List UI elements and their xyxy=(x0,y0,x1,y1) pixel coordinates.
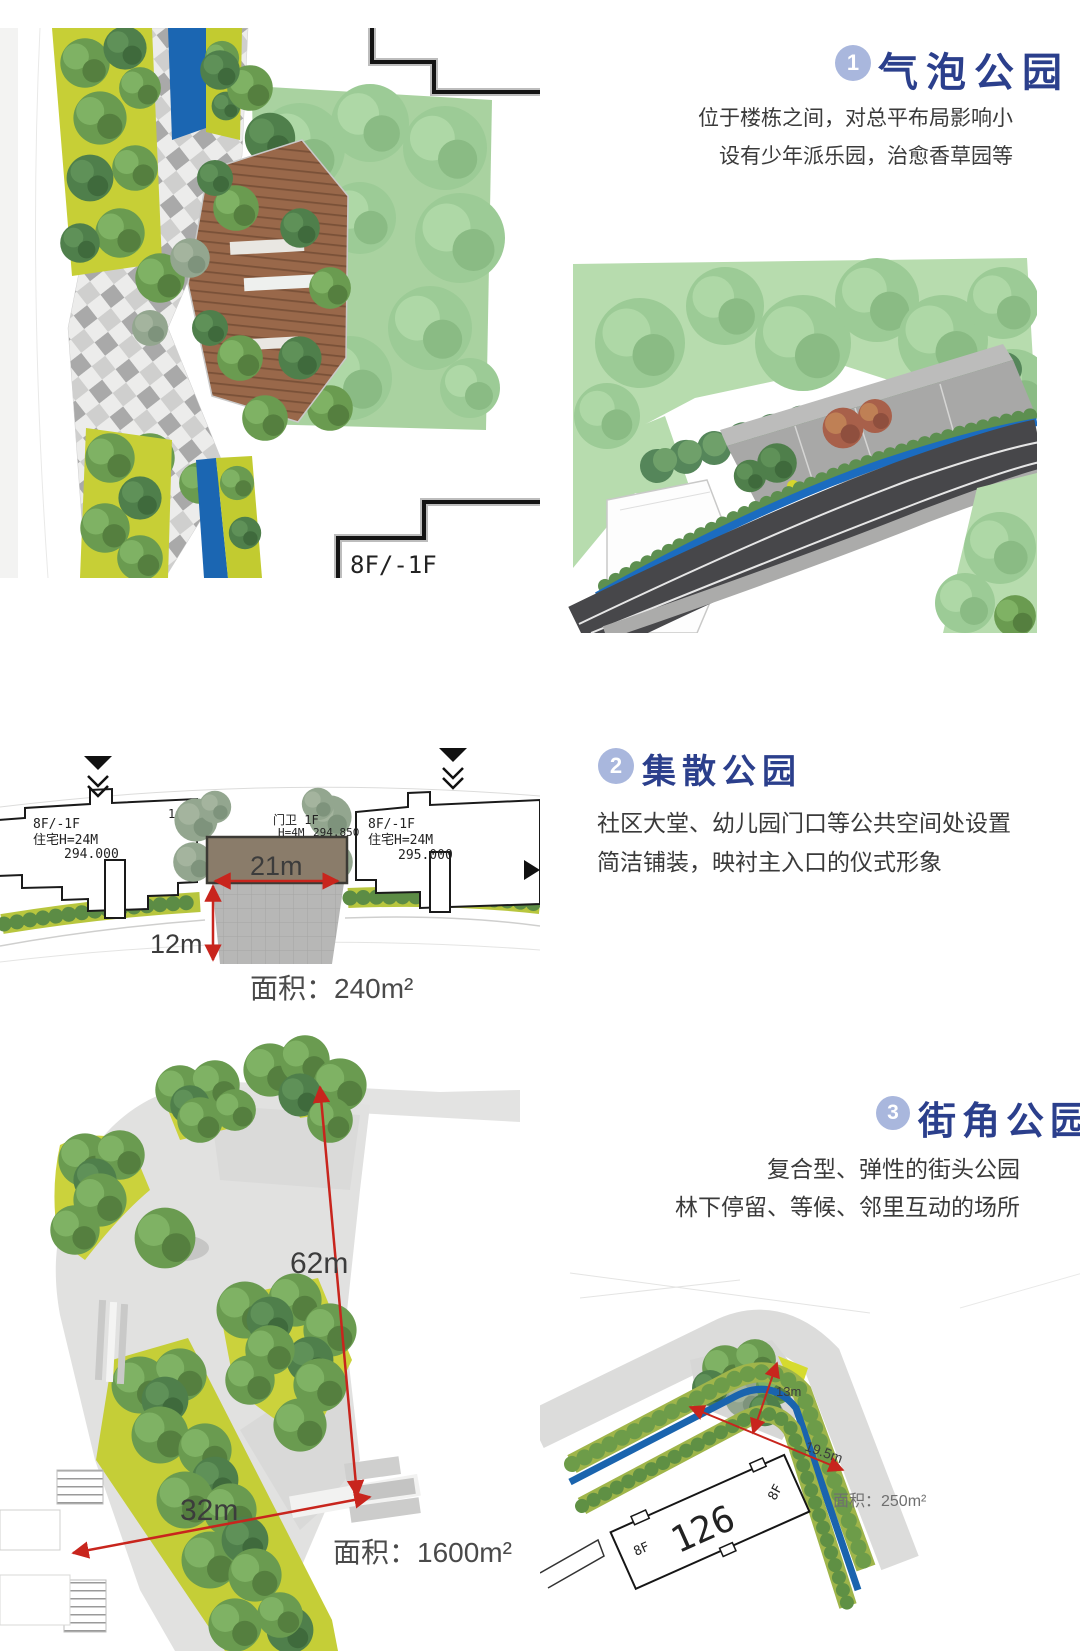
section3-title: 街角公园 xyxy=(918,1090,1080,1145)
gate-name: 门卫 1F xyxy=(273,812,319,827)
corner-detail-plan-image: 126 8F 8F 13m 19.5m 面积：250m² xyxy=(540,1268,1080,1651)
area-240-label: 面积：240m² xyxy=(250,973,413,1004)
planting-strip-bottom-left xyxy=(80,428,172,578)
area-250-label: 面积：250m² xyxy=(833,1492,927,1510)
section1-title: 气泡公园 xyxy=(878,40,1070,98)
section3-desc-line2: 林下停留、等候、邻里互动的场所 xyxy=(600,1188,1020,1226)
section2-desc-line1: 社区大堂、幼儿园门口等公共空间处设置 xyxy=(597,804,1037,843)
section2-title: 集散公园 xyxy=(642,744,802,793)
left-building-floors: 8F/-1F xyxy=(33,817,80,832)
section2-desc-line2: 简洁铺装，映衬主入口的仪式形象 xyxy=(597,843,1037,882)
section1-number-badge: 1 xyxy=(835,45,871,81)
section1-description: 位于楼栋之间，对总平布局影响小 设有少年派乐园，治愈香草园等 xyxy=(583,100,1013,176)
right-building-elevation: 295.000 xyxy=(398,848,453,863)
building-126: 126 8F 8F xyxy=(540,1449,812,1594)
section2-description: 社区大堂、幼儿园门口等公共空间处设置 简洁铺装，映衬主入口的仪式形象 xyxy=(597,804,1037,882)
dim-32m-label: 32m xyxy=(180,1494,238,1527)
section3-description: 复合型、弹性的街头公园 林下停留、等候、邻里互动的场所 xyxy=(600,1150,1020,1226)
roadside-park-plan-image xyxy=(545,248,1037,633)
survey-marker-right xyxy=(439,748,467,788)
bubble-park-plan-image: 8F/-1F xyxy=(0,28,540,578)
gate-elevation: 294.850 xyxy=(313,826,359,839)
water-channel-bottom xyxy=(196,456,262,578)
right-building-type: 住宅H=24M xyxy=(368,833,433,848)
presentation-page: 8F/-1F 1 气泡公园 位于楼栋之间，对总平布局影响小 设有少年派乐园，治愈… xyxy=(0,0,1080,1651)
building-outline-top-right xyxy=(372,28,540,92)
section2-number-badge: 2 xyxy=(598,748,634,784)
gate-height: H=4M xyxy=(278,826,305,839)
building-floor-label: 8F/-1F xyxy=(350,551,437,578)
section1-desc-line2: 设有少年派乐园，治愈香草园等 xyxy=(583,138,1013,176)
section3-number-badge: 3 xyxy=(876,1096,910,1130)
entrance-paving xyxy=(212,883,344,964)
building-outline-bottom-right: 8F/-1F xyxy=(338,502,540,578)
left-building-type: 住宅H=24M xyxy=(33,833,98,848)
section3-desc-line1: 复合型、弹性的街头公园 xyxy=(600,1150,1020,1188)
section1-desc-line1: 位于楼栋之间，对总平布局影响小 xyxy=(583,100,1013,138)
dim-depth-label: 12m xyxy=(150,929,203,959)
left-building-elevation: 294.000 xyxy=(64,847,119,862)
gathering-park-drawing: 8F/-1F 住宅H=24M 294.000 1#楼 8F/-1F 住宅H=24… xyxy=(0,712,540,1012)
dim-13m-label: 13m xyxy=(776,1384,801,1399)
dim-width-label: 21m xyxy=(250,851,303,881)
corner-park-plan-image: 62m 32m 面积：1600m² xyxy=(0,1030,520,1651)
dim-62m-label: 62m xyxy=(290,1247,348,1280)
planting-strip-top-left xyxy=(52,28,162,276)
right-building-floors: 8F/-1F xyxy=(368,817,415,832)
area-1600-label: 面积：1600m² xyxy=(333,1537,512,1568)
